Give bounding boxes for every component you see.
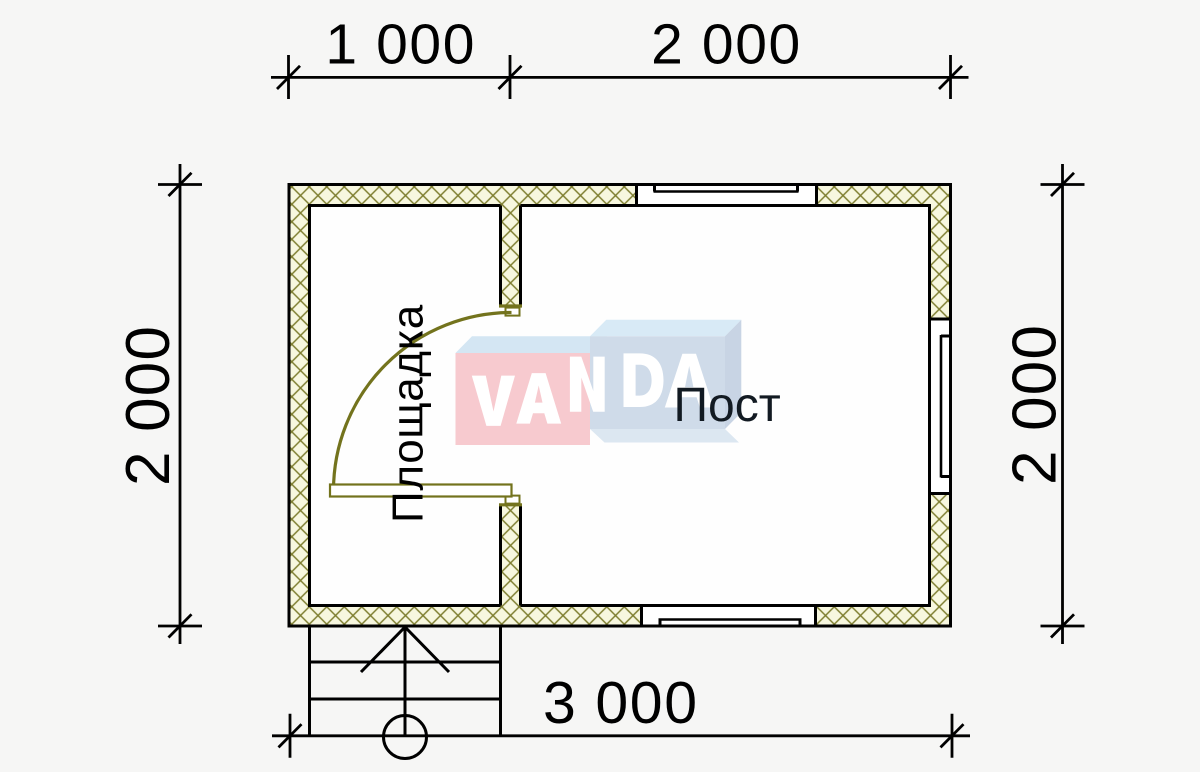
svg-text:2 000: 2 000 [651,13,802,77]
svg-text:Пост: Пост [674,379,781,432]
svg-text:2 000: 2 000 [1000,324,1069,485]
svg-text:Площадка: Площадка [384,304,433,523]
svg-text:2 000: 2 000 [114,325,183,486]
svg-text:3 000: 3 000 [543,670,699,736]
svg-text:1 000: 1 000 [325,13,476,77]
